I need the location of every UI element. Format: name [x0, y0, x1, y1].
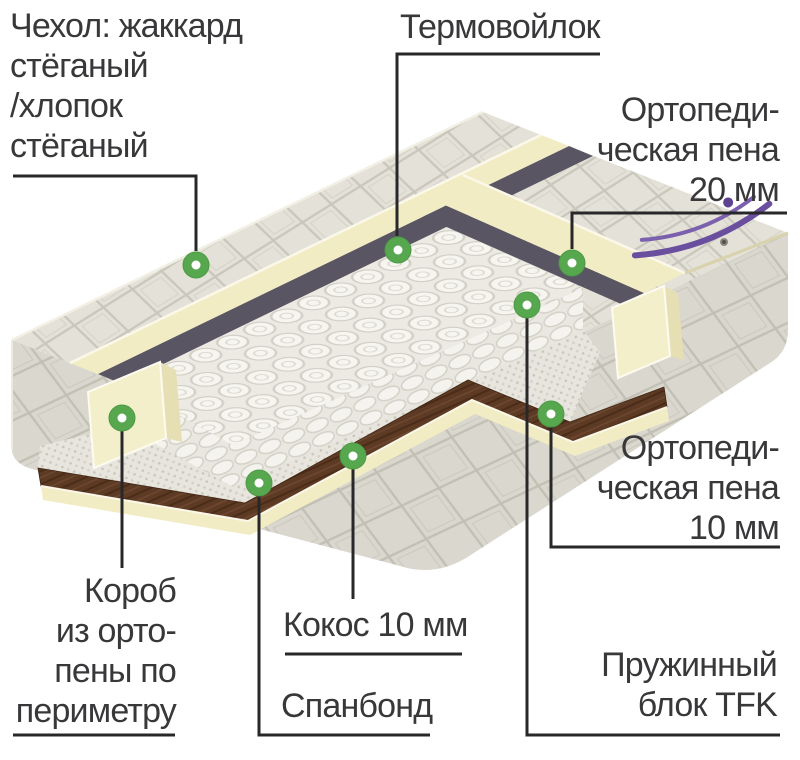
marker-foam10-icon — [538, 401, 564, 427]
mattress-layers-diagram: Чехол: жаккард стёганый /хлопок стёганый… — [0, 0, 800, 760]
marker-perimeter-box-icon — [109, 405, 135, 431]
side-button — [720, 238, 728, 246]
marker-spring-block-icon — [514, 292, 540, 318]
label-spring-block: Пружинный блок TFK — [537, 645, 777, 725]
label-perimeter-box: Короб из орто- пены по периметру — [6, 571, 176, 731]
marker-coconut-icon — [340, 443, 366, 469]
label-thermofelt: Термовойлок — [400, 7, 600, 47]
marker-foam20-icon — [559, 250, 585, 276]
label-coconut: Кокос 10 мм — [283, 605, 468, 645]
marker-cover-icon — [183, 252, 209, 278]
leader-line-cover — [13, 176, 196, 251]
marker-spunbond-icon — [246, 470, 272, 496]
label-spunbond: Спанбонд — [281, 686, 432, 726]
label-foam10: Ортопеди- ческая пена 10 мм — [519, 428, 779, 548]
label-foam20: Ортопеди- ческая пена 20 мм — [519, 90, 779, 210]
label-cover: Чехол: жаккард стёганый /хлопок стёганый — [10, 6, 300, 166]
marker-thermofelt-icon — [385, 237, 411, 263]
